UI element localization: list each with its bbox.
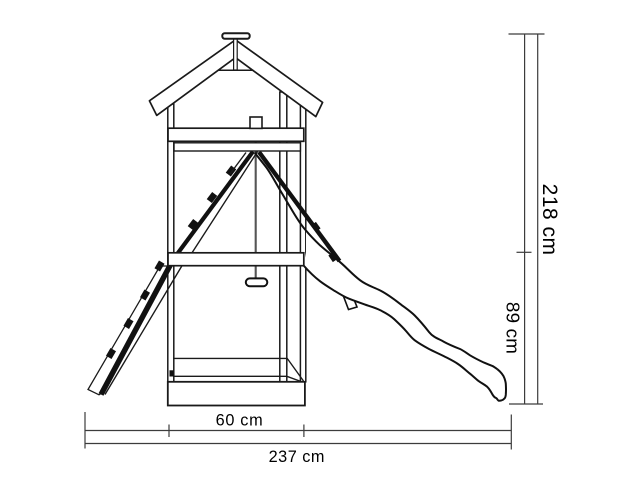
svg-text:237 cm: 237 cm <box>269 448 325 466</box>
svg-text:60 cm: 60 cm <box>216 412 264 430</box>
svg-text:89 cm: 89 cm <box>503 302 524 354</box>
svg-text:218 cm: 218 cm <box>538 184 561 256</box>
